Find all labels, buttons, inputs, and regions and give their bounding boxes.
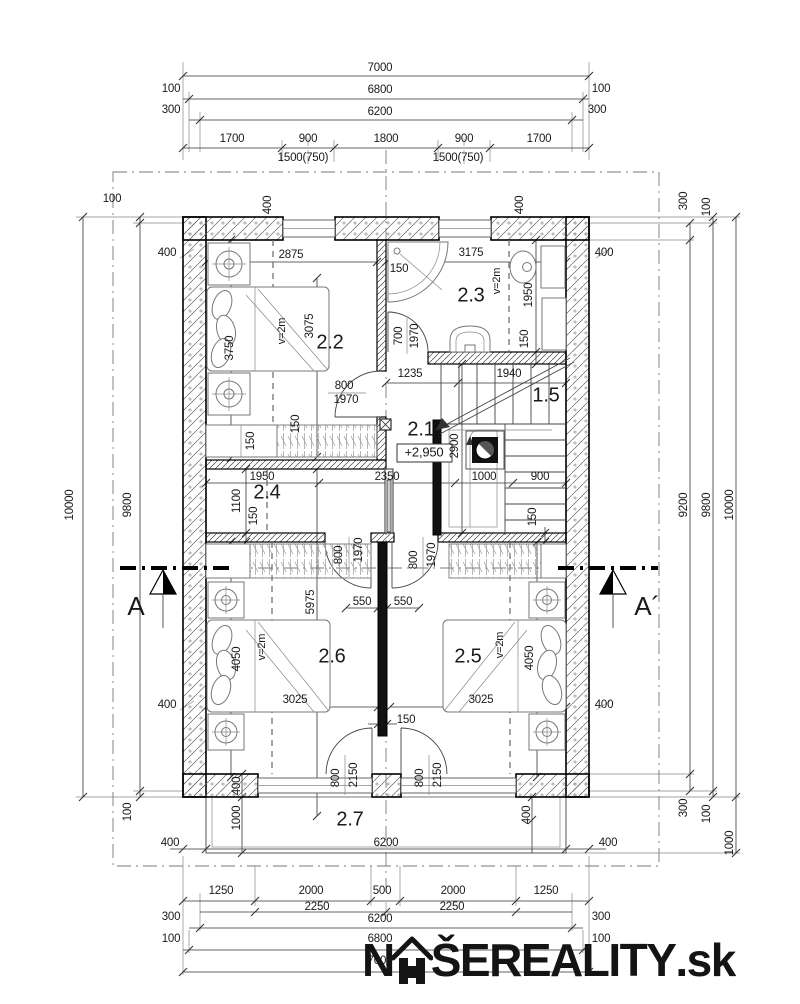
dim-label: 6200: [374, 837, 399, 849]
downlight-2-5-bottom: [529, 714, 565, 750]
dim-label: 1700: [220, 133, 245, 145]
dim-label: 6800: [368, 84, 393, 96]
downlight-2-2-top: [208, 243, 250, 285]
note-label: v=2m: [276, 318, 288, 344]
dim-label: 1250: [534, 885, 559, 897]
bed-2-6: [207, 620, 330, 712]
window-top-left: [283, 220, 335, 237]
sink: [450, 326, 490, 352]
downlight-2-5-top: [529, 582, 565, 618]
dim-label: 4050: [524, 646, 536, 671]
dim-label: 1970: [353, 538, 365, 563]
dim-label: 800: [414, 769, 426, 788]
dim-label: 1000: [472, 471, 497, 483]
dim-label: 1235: [398, 368, 423, 380]
watermark-tld: .sk: [675, 937, 734, 983]
dim-label: 150: [290, 415, 302, 434]
chimney: [466, 431, 504, 469]
dim-label: 1950: [523, 283, 535, 308]
dim-label: 150: [397, 714, 416, 726]
floor-plan-page: 7000100680010030062003001700900180090017…: [0, 0, 800, 1004]
dim-label: 900: [531, 471, 550, 483]
wardrobe-2-5: [449, 544, 566, 578]
dim-label: 300: [592, 911, 611, 923]
dim-label: 100: [122, 803, 134, 822]
dim-label: 700: [393, 327, 405, 346]
downlight-2-6-top: [208, 582, 244, 618]
dim-label: 9800: [122, 493, 134, 518]
dim-label: 4050: [231, 647, 243, 672]
room-label: 2.5: [454, 645, 481, 667]
dim-label: 800: [333, 546, 345, 565]
wardrobe-2-6: [206, 544, 371, 578]
house-roof-icon: [391, 936, 433, 984]
dim-label: 2000: [299, 885, 324, 897]
note-label: v=2m: [494, 632, 506, 658]
dim-label: 2875: [279, 249, 304, 261]
dim-label: 400: [521, 806, 533, 825]
dim-label: 400: [158, 699, 177, 711]
dim-label: 6200: [368, 106, 393, 118]
dim-label: 150: [245, 432, 257, 451]
section-arrow-left: [150, 570, 176, 628]
dim-label: 300: [588, 104, 607, 116]
dim-label: 150: [248, 507, 260, 526]
bath-cabinet: [542, 298, 566, 350]
dim-label: 10000: [64, 490, 76, 521]
floor-plan-drawing: 7000100680010030062003001700900180090017…: [0, 0, 800, 1004]
dim-label: 150: [527, 508, 539, 527]
dim-label: 100: [103, 193, 122, 205]
dim-label: 300: [678, 799, 690, 818]
dim-label: 100: [701, 198, 713, 217]
dim-label: 1500(750): [433, 152, 484, 164]
dim-label: 9800: [701, 493, 713, 518]
dim-label: 400: [595, 699, 614, 711]
dim-label: 2150: [348, 763, 360, 788]
toilet: [510, 246, 565, 288]
dim-label: 400: [158, 247, 177, 259]
room-label: 1.5: [532, 384, 559, 406]
dim-label: 900: [455, 133, 474, 145]
dim-label: 550: [394, 596, 413, 608]
dim-label: 1700: [527, 133, 552, 145]
dim-label: 800: [335, 380, 354, 392]
dim-label: 9200: [678, 493, 690, 518]
dim-label: 10000: [724, 490, 736, 521]
dim-label: 1500(750): [278, 152, 329, 164]
dim-label: 1970: [409, 324, 421, 349]
dim-label: 800: [408, 551, 420, 570]
dim-label: 1940: [497, 368, 522, 380]
watermark-prefix: N: [362, 937, 394, 983]
watermark-logo: N ŠEREALITY.sk: [362, 936, 735, 983]
section-label: A: [127, 591, 145, 621]
dim-label: 400: [262, 196, 274, 215]
dim-label: 1970: [334, 394, 359, 406]
dim-label: 400: [595, 247, 614, 259]
dim-label: 2150: [432, 763, 444, 788]
dim-label: 100: [162, 933, 181, 945]
dim-label: 300: [162, 911, 181, 923]
room-label: 2.4: [253, 481, 280, 503]
dim-label: 3750: [224, 336, 236, 361]
dim-label: 550: [353, 596, 372, 608]
dim-label: 1000: [724, 831, 736, 856]
dim-label: 400: [161, 837, 180, 849]
note-label: v=2m: [256, 634, 268, 660]
dim-label: 300: [678, 192, 690, 211]
dim-label: 1800: [374, 133, 399, 145]
room-label: 2.6: [318, 645, 345, 667]
dim-label: 1970: [426, 543, 438, 568]
dim-label: 1000: [231, 806, 243, 831]
dim-label: 5975: [305, 590, 317, 615]
dim-label: 900: [299, 133, 318, 145]
dim-label: 100: [592, 83, 611, 95]
text-labels: 7000100680010030062003001700900180090017…: [64, 62, 736, 967]
dim-label: 150: [519, 330, 531, 349]
dim-label: 2250: [440, 901, 465, 913]
dim-label: 400: [231, 777, 243, 796]
room-label: 2.1: [407, 418, 434, 440]
note-label: v=2m: [491, 268, 503, 294]
sliding-door-leaf: [387, 480, 391, 532]
dim-label: 3075: [304, 314, 316, 339]
dim-label: 100: [701, 805, 713, 824]
dim-label: 6200: [368, 913, 393, 925]
dim-label: 3175: [459, 247, 484, 259]
downlight-2-2-bottom: [208, 373, 250, 415]
watermark-main: ŠEREALITY: [431, 937, 676, 983]
section-arrow-right: [600, 570, 626, 628]
room-label: 2.3: [457, 284, 484, 306]
dim-label: 150: [390, 263, 409, 275]
dim-label: 2250: [305, 901, 330, 913]
dim-label: 400: [514, 196, 526, 215]
dim-label: 300: [162, 104, 181, 116]
dim-label: 3025: [469, 694, 494, 706]
level-label: +2,950: [405, 444, 444, 459]
dim-label: 3025: [283, 694, 308, 706]
downlight-2-6-bottom: [208, 714, 244, 750]
dim-label: 1250: [209, 885, 234, 897]
dim-label: 400: [599, 837, 618, 849]
room-label: 2.2: [316, 331, 343, 353]
section-label: A´: [634, 591, 660, 621]
dim-label: 2900: [449, 434, 461, 459]
dim-label: 2000: [441, 885, 466, 897]
window-top-right: [439, 220, 491, 237]
dim-label: 7000: [368, 62, 393, 74]
room-label: 2.7: [336, 808, 363, 830]
dim-label: 100: [162, 83, 181, 95]
dim-label: 500: [373, 885, 392, 897]
dim-label: 1100: [231, 489, 243, 513]
dim-label: 2350: [375, 471, 400, 483]
dim-label: 800: [330, 769, 342, 788]
